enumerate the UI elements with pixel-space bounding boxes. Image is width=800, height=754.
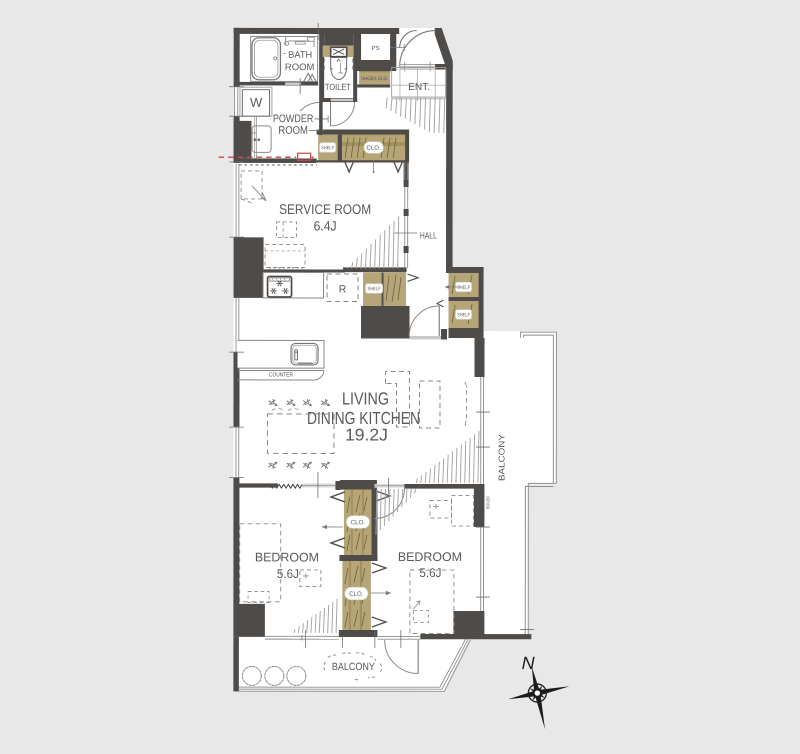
svg-text:ROOM: ROOM — [278, 125, 308, 137]
svg-text:SERVICE ROOM: SERVICE ROOM — [279, 201, 371, 217]
svg-text:POWDER: POWDER — [273, 113, 314, 125]
svg-text:19.2J: 19.2J — [345, 425, 388, 444]
svg-text:COUNTER: COUNTER — [269, 372, 294, 379]
svg-text:PS: PS — [372, 45, 380, 52]
svg-text:W: W — [250, 95, 263, 110]
svg-text:HALL: HALL — [420, 231, 437, 241]
svg-text:BALCONY: BALCONY — [332, 661, 375, 673]
svg-text:5.6J: 5.6J — [277, 567, 299, 581]
svg-text:BATH: BATH — [288, 50, 312, 61]
svg-text:SHELF: SHELF — [368, 286, 381, 292]
svg-text:R: R — [339, 283, 347, 295]
svg-text:CLO.: CLO. — [351, 519, 366, 526]
svg-text:SHELF: SHELF — [457, 312, 470, 318]
svg-text:BALCONY: BALCONY — [496, 434, 506, 481]
svg-text:TOILET: TOILET — [325, 82, 351, 92]
svg-text:5.6J: 5.6J — [419, 566, 441, 580]
svg-text:CLO.: CLO. — [366, 145, 381, 152]
svg-text:N: N — [522, 653, 536, 673]
svg-text:BEDROOM: BEDROOM — [398, 550, 462, 564]
svg-text:ROOM: ROOM — [285, 62, 315, 73]
svg-text:6.4J: 6.4J — [314, 218, 337, 233]
svg-text:SHOES CLO.: SHOES CLO. — [361, 76, 388, 82]
svg-text:SHELF: SHELF — [321, 145, 334, 151]
svg-text:SHELF: SHELF — [457, 285, 470, 291]
svg-text:BEDROOM: BEDROOM — [255, 550, 319, 564]
svg-text:ENT.: ENT. — [408, 82, 430, 93]
svg-text:LIVING: LIVING — [342, 388, 389, 408]
svg-text:CLO.: CLO. — [349, 591, 364, 598]
svg-text:BOILER: BOILER — [485, 496, 490, 509]
